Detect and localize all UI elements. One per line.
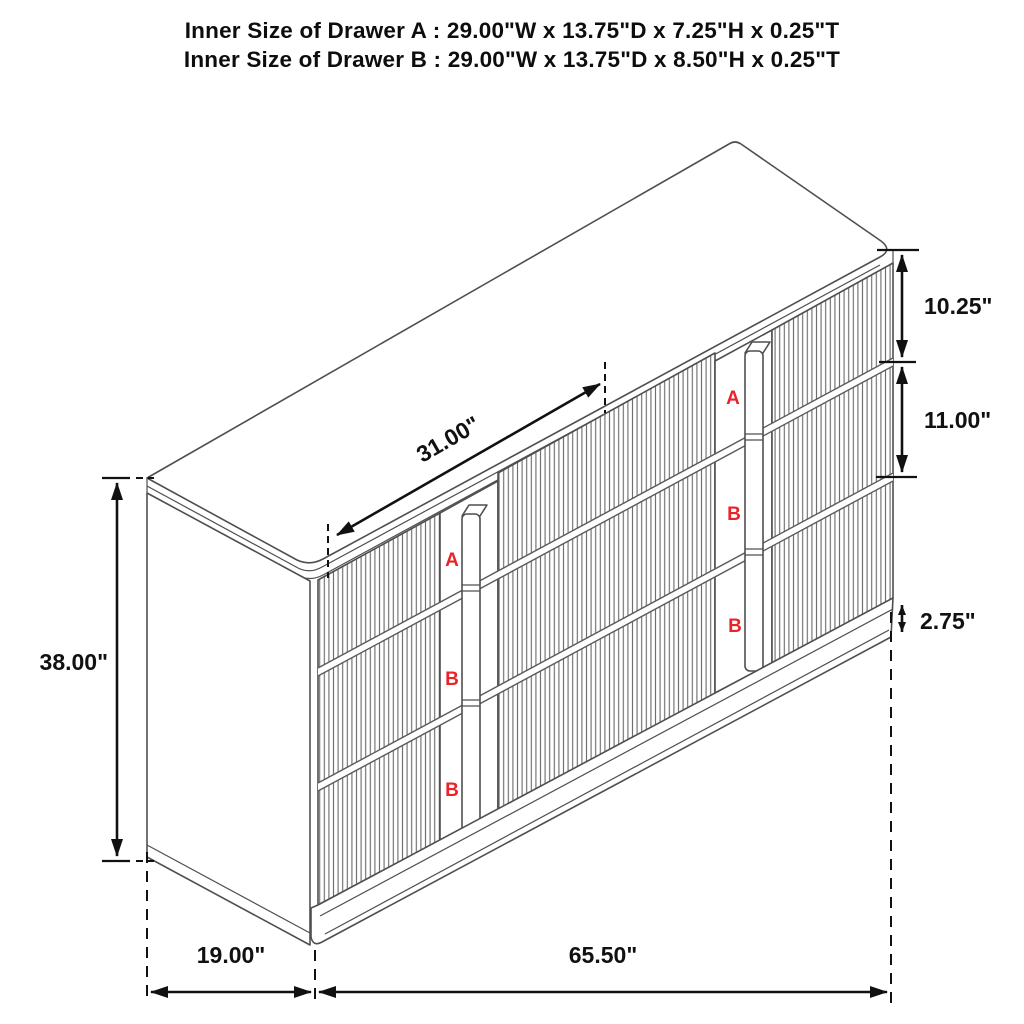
dresser-line-drawing: A B B A B B 31.00": [0, 0, 1024, 1024]
drawer-letter-right-b2: B: [728, 616, 742, 637]
handle-right-bar: [745, 351, 763, 671]
drawer-letter-left-a: A: [445, 550, 459, 571]
dim-drawer-a-height: 10.25": [877, 250, 992, 362]
drawer-letter-right-a: A: [726, 388, 740, 409]
cabinet: A B B A B B: [147, 142, 893, 945]
dim-label-19: 19.00": [197, 942, 265, 968]
handle-left-bar: [462, 514, 480, 838]
dim-label-65-50: 65.50": [569, 942, 637, 968]
dim-label-2-75: 2.75": [920, 608, 976, 634]
drawer-letter-left-b1: B: [445, 669, 459, 690]
dim-label-38: 38.00": [40, 649, 108, 675]
dim-overall-height: 38.00": [40, 478, 154, 861]
dim-label-11-00: 11.00": [924, 407, 991, 433]
fluted-drawer-front-right: [772, 263, 893, 663]
dim-label-10-25: 10.25": [924, 293, 992, 319]
dresser-dimension-diagram-page: Inner Size of Drawer A : 29.00"W x 13.75…: [0, 0, 1024, 1024]
dim-base-height: 2.75": [902, 605, 976, 634]
fluted-drawer-front-left: [318, 513, 440, 905]
drawer-letter-left-b2: B: [445, 780, 459, 801]
drawer-letter-right-b1: B: [727, 504, 741, 525]
